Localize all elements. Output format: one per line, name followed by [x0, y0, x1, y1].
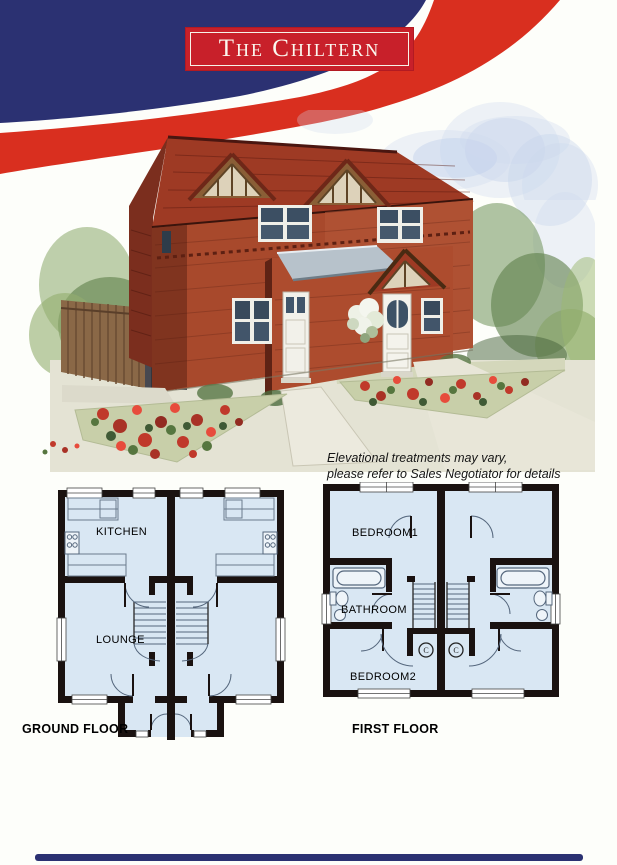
footer-bar [35, 854, 583, 861]
page-title: The Chiltern [219, 35, 381, 63]
bath-left [333, 568, 385, 588]
ground-window-left [232, 298, 272, 344]
cupboard-c-right: C [453, 646, 458, 655]
disclaimer-line-2: please refer to Sales Negotiator for det… [327, 466, 587, 482]
bathroom-label: BATHROOM [341, 604, 407, 616]
bedroom1-label: BEDROOM1 [352, 527, 418, 539]
ground-floor-caption: GROUND FLOOR [22, 722, 128, 736]
first-floor-plan: C C BEDROOM1 BATHROOM BEDROOM2 [321, 482, 561, 717]
title-box-border: The Chiltern [190, 32, 409, 66]
front-door-right [381, 294, 413, 377]
bedroom2-label: BEDROOM2 [350, 671, 416, 683]
upper-window-left [258, 205, 312, 242]
title-box: The Chiltern [186, 28, 413, 70]
upper-window-right [377, 207, 423, 243]
first-floor-caption: FIRST FLOOR [352, 722, 439, 736]
disclaimer-text: Elevational treatments may vary, please … [327, 450, 587, 482]
disclaimer-line-1: Elevational treatments may vary, [327, 450, 587, 466]
house-illustration [25, 110, 595, 475]
cupboard-c-left: C [423, 646, 428, 655]
front-door-left [281, 292, 311, 383]
ground-window-right [421, 298, 443, 334]
small-side-window [162, 231, 171, 253]
brochure-page: The Chiltern [0, 0, 617, 865]
bath-right [497, 568, 549, 588]
lounge-label: LOUNGE [96, 634, 145, 646]
kitchen-label: KITCHEN [96, 526, 147, 538]
ground-floor-plan: KITCHEN LOUNGE [56, 484, 286, 746]
house [129, 137, 473, 400]
